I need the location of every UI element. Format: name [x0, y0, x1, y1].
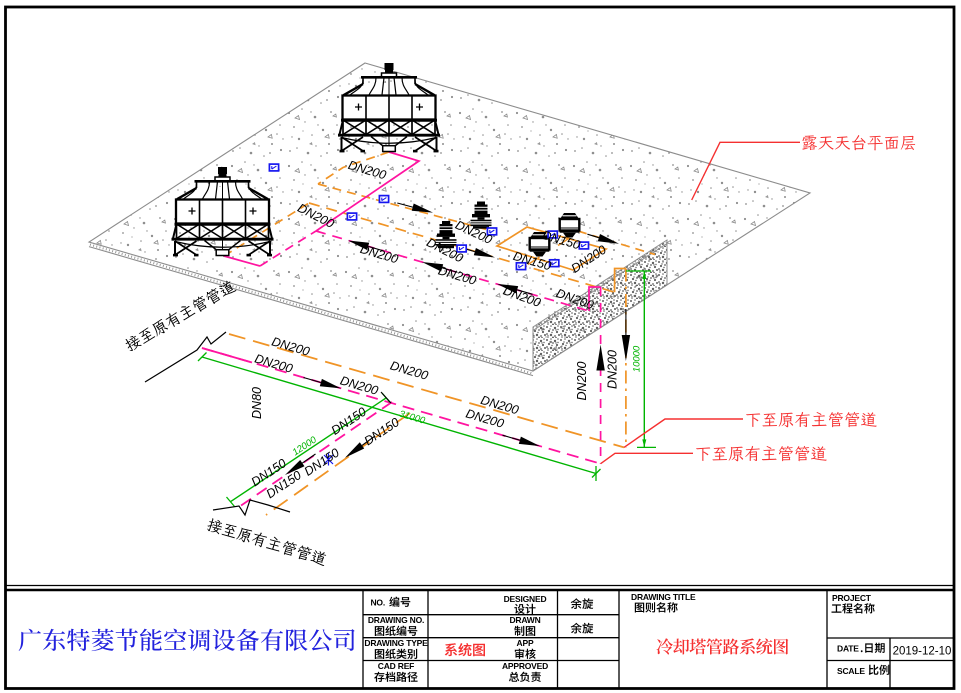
svg-text:CAD REF: CAD REF	[378, 661, 414, 671]
svg-text:DRAWN: DRAWN	[509, 615, 540, 625]
svg-text:PROJECT: PROJECT	[832, 593, 872, 603]
svg-text:DN200: DN200	[606, 350, 620, 389]
svg-text:DRAWING TITLE: DRAWING TITLE	[631, 592, 696, 602]
svg-text:SCALE: SCALE	[837, 666, 865, 676]
svg-text:APP: APP	[517, 638, 534, 648]
svg-text:DN80: DN80	[250, 387, 264, 419]
svg-text:DN150: DN150	[329, 405, 369, 438]
svg-text:APPROVED: APPROVED	[502, 661, 548, 671]
svg-text:DN150: DN150	[362, 415, 402, 448]
svg-text:DRAWING NO.: DRAWING NO.	[368, 615, 424, 625]
svg-text:DESIGNED: DESIGNED	[504, 594, 547, 604]
svg-text:DRAWING TYPE: DRAWING TYPE	[364, 638, 428, 648]
svg-text:DN200: DN200	[270, 334, 311, 358]
svg-text:2019-12-10: 2019-12-10	[893, 646, 952, 658]
svg-text:DATE: DATE	[837, 644, 859, 654]
svg-text:DN200: DN200	[388, 358, 429, 382]
svg-text:10000: 10000	[632, 345, 643, 372]
svg-text:NO.: NO.	[370, 598, 385, 608]
svg-text:DN200: DN200	[575, 362, 589, 401]
svg-text:DN200: DN200	[253, 351, 294, 375]
